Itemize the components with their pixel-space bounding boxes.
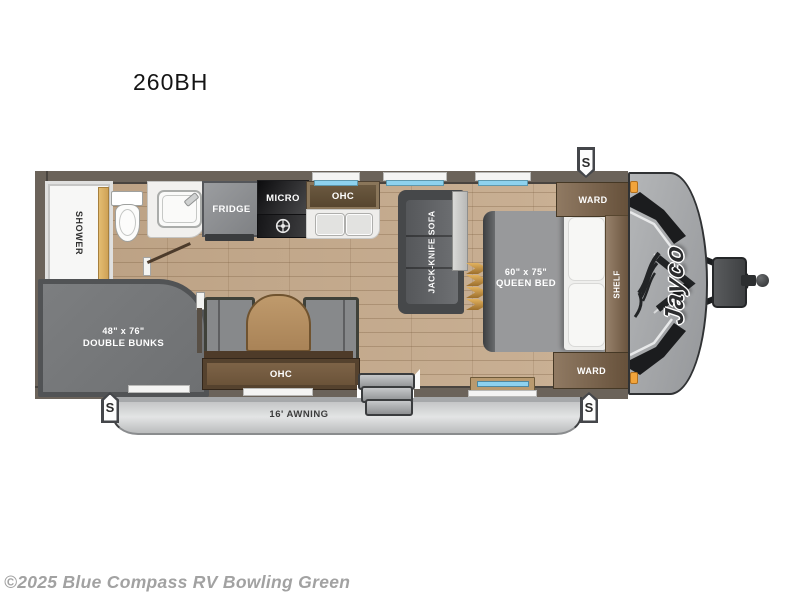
stove [257, 214, 309, 238]
double-bunks: 48" x 76" DOUBLE BUNKS [38, 279, 209, 397]
awning-roller [114, 397, 580, 402]
window [243, 388, 313, 396]
awning-label: 16' AWNING [239, 409, 359, 420]
dinette-ohc: OHC [202, 358, 360, 390]
entry-step [365, 399, 413, 416]
marker-light [630, 372, 638, 384]
wardrobe-bottom: WARD [553, 352, 630, 389]
kitchen-counter [306, 209, 380, 239]
speaker-letter: S [580, 150, 593, 176]
brand-logo-text: Jayco [659, 242, 690, 325]
front-cap: Jayco [628, 172, 708, 395]
window-sill [468, 390, 537, 397]
fridge-base [205, 234, 254, 241]
copyright-watermark: ©2025 Blue Compass RV Bowling Green [4, 572, 350, 593]
bed-size-label: 60" x 75" [487, 267, 565, 278]
window-glass [478, 180, 528, 186]
marker-light [630, 181, 638, 193]
window-glass [477, 381, 529, 387]
brand-logo: Jayco [656, 202, 692, 366]
queen-bed: 60" x 75" QUEEN BED [483, 211, 608, 352]
bed-name-label: QUEEN BED [487, 278, 565, 290]
shelf-label: SHELF [613, 270, 622, 298]
fridge: FRIDGE [202, 181, 261, 237]
window-glass [314, 180, 358, 186]
kitchen-sink-basin [346, 214, 372, 235]
microwave: MICRO [257, 180, 309, 216]
kitchen-ohc-label: OHC [332, 191, 354, 202]
toilet-bowl [115, 204, 140, 242]
speaker-letter: S [104, 395, 117, 421]
awning: 16' AWNING [112, 397, 582, 435]
dinette-divider-wall [197, 308, 202, 353]
wardrobe-top-label: WARD [578, 195, 607, 205]
bed-pillow [568, 283, 605, 347]
hitch-coupler [741, 275, 756, 286]
bed-pillow [568, 217, 605, 281]
bunks-size-label: 48" x 76" [102, 326, 144, 338]
window-glass [386, 180, 444, 186]
sofa-label: JACK-KNIFE SOFA [426, 211, 436, 294]
shelf-column: SHELF [605, 215, 630, 354]
window [128, 385, 190, 393]
fridge-label: FRIDGE [212, 204, 250, 215]
shower-label: SHOWER [74, 210, 84, 254]
shower-door [98, 187, 109, 290]
microwave-label: MICRO [266, 193, 300, 204]
dinette-table [246, 294, 311, 352]
dinette-ohc-inset: OHC [207, 363, 355, 385]
bunks-name-label: DOUBLE BUNKS [83, 338, 164, 350]
bedroom-window [470, 377, 535, 391]
kitchen-sink-basin [316, 214, 344, 235]
dinette-ohc-label: OHC [270, 369, 292, 380]
speaker-letter: S [583, 395, 596, 421]
wardrobe-top: WARD [556, 182, 630, 217]
toilet-seat [119, 209, 136, 236]
burner-icon [275, 218, 291, 234]
kitchen-ohc-inset: OHC [310, 185, 376, 207]
bed-label: 60" x 75" QUEEN BED [487, 267, 565, 290]
page-title: 260BH [133, 69, 208, 96]
sofa-partition [452, 191, 468, 271]
wardrobe-bottom-label: WARD [577, 366, 606, 376]
hitch-ball [756, 274, 769, 287]
floorplan-page: 260BH SHOWER FRIDGE MICRO OHC [0, 0, 800, 600]
